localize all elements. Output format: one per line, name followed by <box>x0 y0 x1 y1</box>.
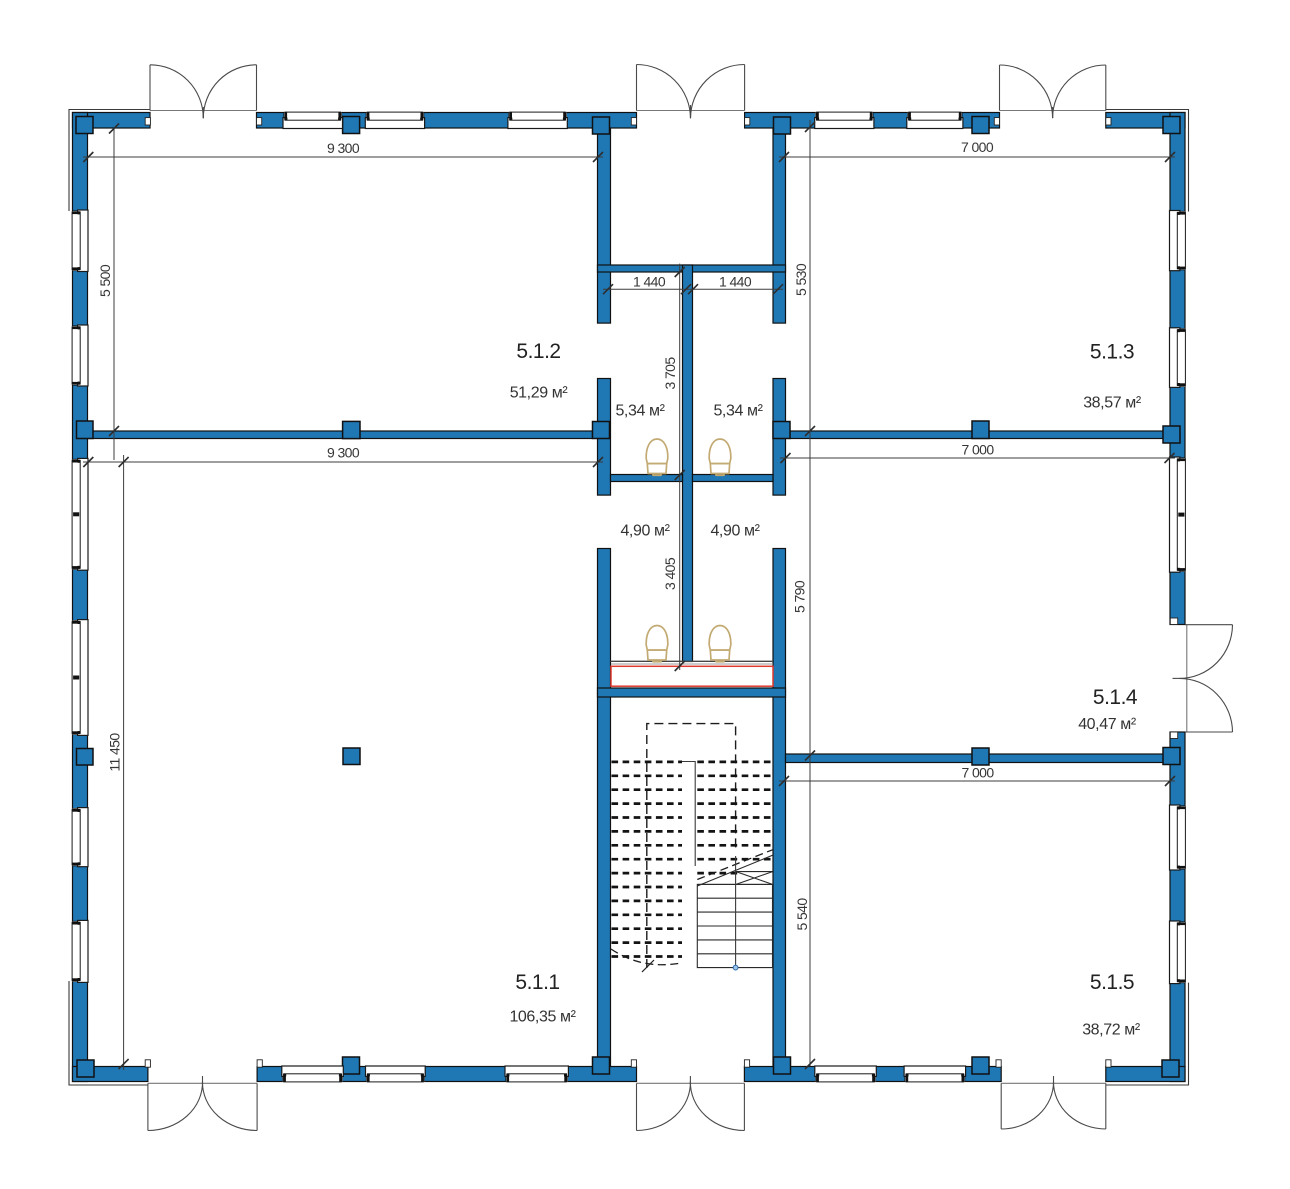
svg-text:5.1.5: 5.1.5 <box>1090 971 1134 994</box>
svg-text:5.1.1: 5.1.1 <box>515 971 559 994</box>
svg-text:5 530: 5 530 <box>793 263 809 296</box>
svg-text:5,34 м²: 5,34 м² <box>615 403 665 420</box>
svg-text:3 705: 3 705 <box>662 357 678 390</box>
svg-text:3 405: 3 405 <box>662 557 678 590</box>
svg-text:11 450: 11 450 <box>107 733 123 772</box>
svg-text:7 000: 7 000 <box>961 765 994 781</box>
svg-text:5.1.2: 5.1.2 <box>516 340 560 363</box>
svg-text:5 540: 5 540 <box>794 898 810 931</box>
svg-text:1 440: 1 440 <box>719 274 752 290</box>
svg-text:1 440: 1 440 <box>633 274 666 290</box>
svg-text:9 300: 9 300 <box>327 140 360 156</box>
svg-text:106,35 м²: 106,35 м² <box>509 1009 576 1026</box>
svg-text:5.1.3: 5.1.3 <box>1090 341 1134 364</box>
svg-text:5,34 м²: 5,34 м² <box>713 403 763 420</box>
svg-text:38,72 м²: 38,72 м² <box>1082 1022 1141 1039</box>
svg-text:4,90 м²: 4,90 м² <box>620 523 670 540</box>
svg-text:5.1.4: 5.1.4 <box>1093 686 1138 709</box>
svg-text:7 000: 7 000 <box>961 139 994 155</box>
svg-text:4,90 м²: 4,90 м² <box>710 523 760 540</box>
svg-text:38,57 м²: 38,57 м² <box>1083 395 1142 412</box>
svg-text:9 300: 9 300 <box>327 445 360 461</box>
svg-text:40,47 м²: 40,47 м² <box>1078 716 1137 733</box>
svg-text:7 000: 7 000 <box>961 442 994 458</box>
svg-text:51,29 м²: 51,29 м² <box>510 385 569 402</box>
svg-text:5 500: 5 500 <box>97 264 113 297</box>
svg-text:5 790: 5 790 <box>792 580 808 613</box>
